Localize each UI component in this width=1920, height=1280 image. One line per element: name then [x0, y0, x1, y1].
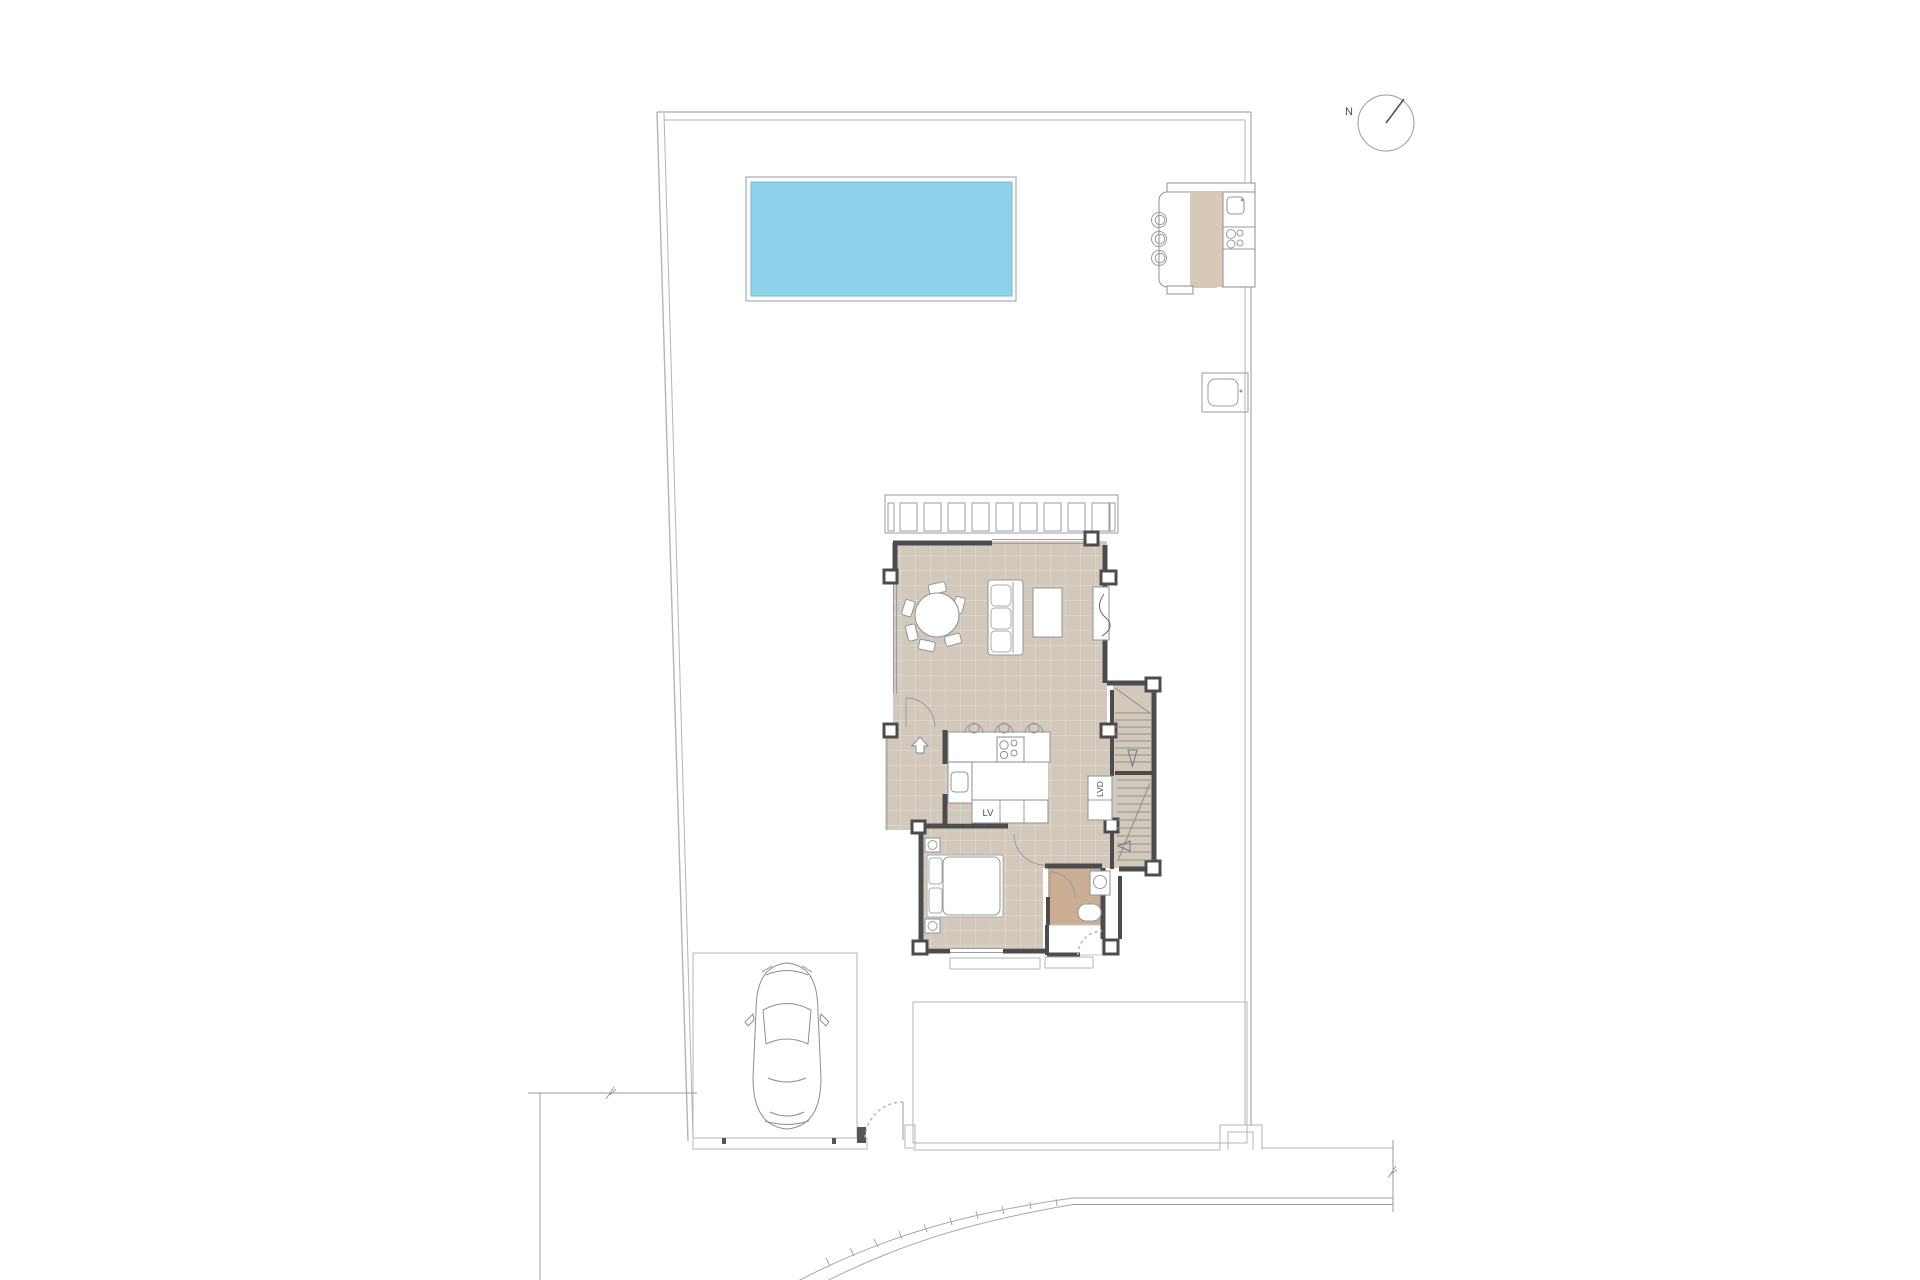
laundry-closet: LVD: [1088, 776, 1112, 820]
back-patio: [913, 1002, 1262, 1150]
bathtub: [1078, 904, 1101, 921]
outdoor-shower: [1202, 373, 1248, 412]
dining-table: [915, 593, 959, 637]
coffee-table: [1033, 588, 1062, 637]
pedestrian-gate: [865, 1102, 915, 1148]
car-mirror: [820, 1014, 829, 1026]
sidewalk-lines: [1073, 1190, 1393, 1212]
mattress: [943, 857, 1000, 915]
kitchen-aisle: [972, 762, 1048, 800]
car: [745, 963, 829, 1129]
pillow: [929, 888, 942, 913]
swimming-pool: [746, 177, 1016, 301]
garage: [693, 953, 867, 1149]
parking-pad: [693, 953, 857, 1138]
outdoor-kitchen-counter: [1190, 192, 1223, 287]
washbasin-cabinet: [1090, 871, 1110, 895]
pergola: [885, 495, 1118, 533]
site-lines: [528, 1087, 1397, 1280]
dishwasher-label: LV: [983, 808, 995, 819]
floor-plan-drawing: N: [0, 0, 1920, 1280]
compass-needle: [1386, 99, 1404, 123]
kitchen-sink: [951, 772, 968, 792]
sofa: [988, 580, 1023, 655]
pool-water: [751, 182, 1012, 296]
rear-porch-room: [1047, 925, 1102, 955]
nightstand: [925, 919, 940, 933]
garage-curb: [693, 1138, 867, 1149]
tv-unit: [1093, 587, 1110, 640]
cooktop: [997, 737, 1024, 762]
site-plan-canvas: N: [0, 0, 1920, 1280]
north-label: N: [1345, 106, 1353, 118]
car-mirror: [745, 1014, 754, 1026]
north-compass: N: [1345, 95, 1414, 151]
outdoor-kitchen: [1152, 183, 1256, 294]
porch-slabs: [950, 957, 1093, 969]
road-curb: [796, 1198, 1073, 1280]
pillow: [929, 858, 942, 884]
nightstand: [925, 838, 940, 852]
washer-label: LVD: [1095, 781, 1105, 797]
